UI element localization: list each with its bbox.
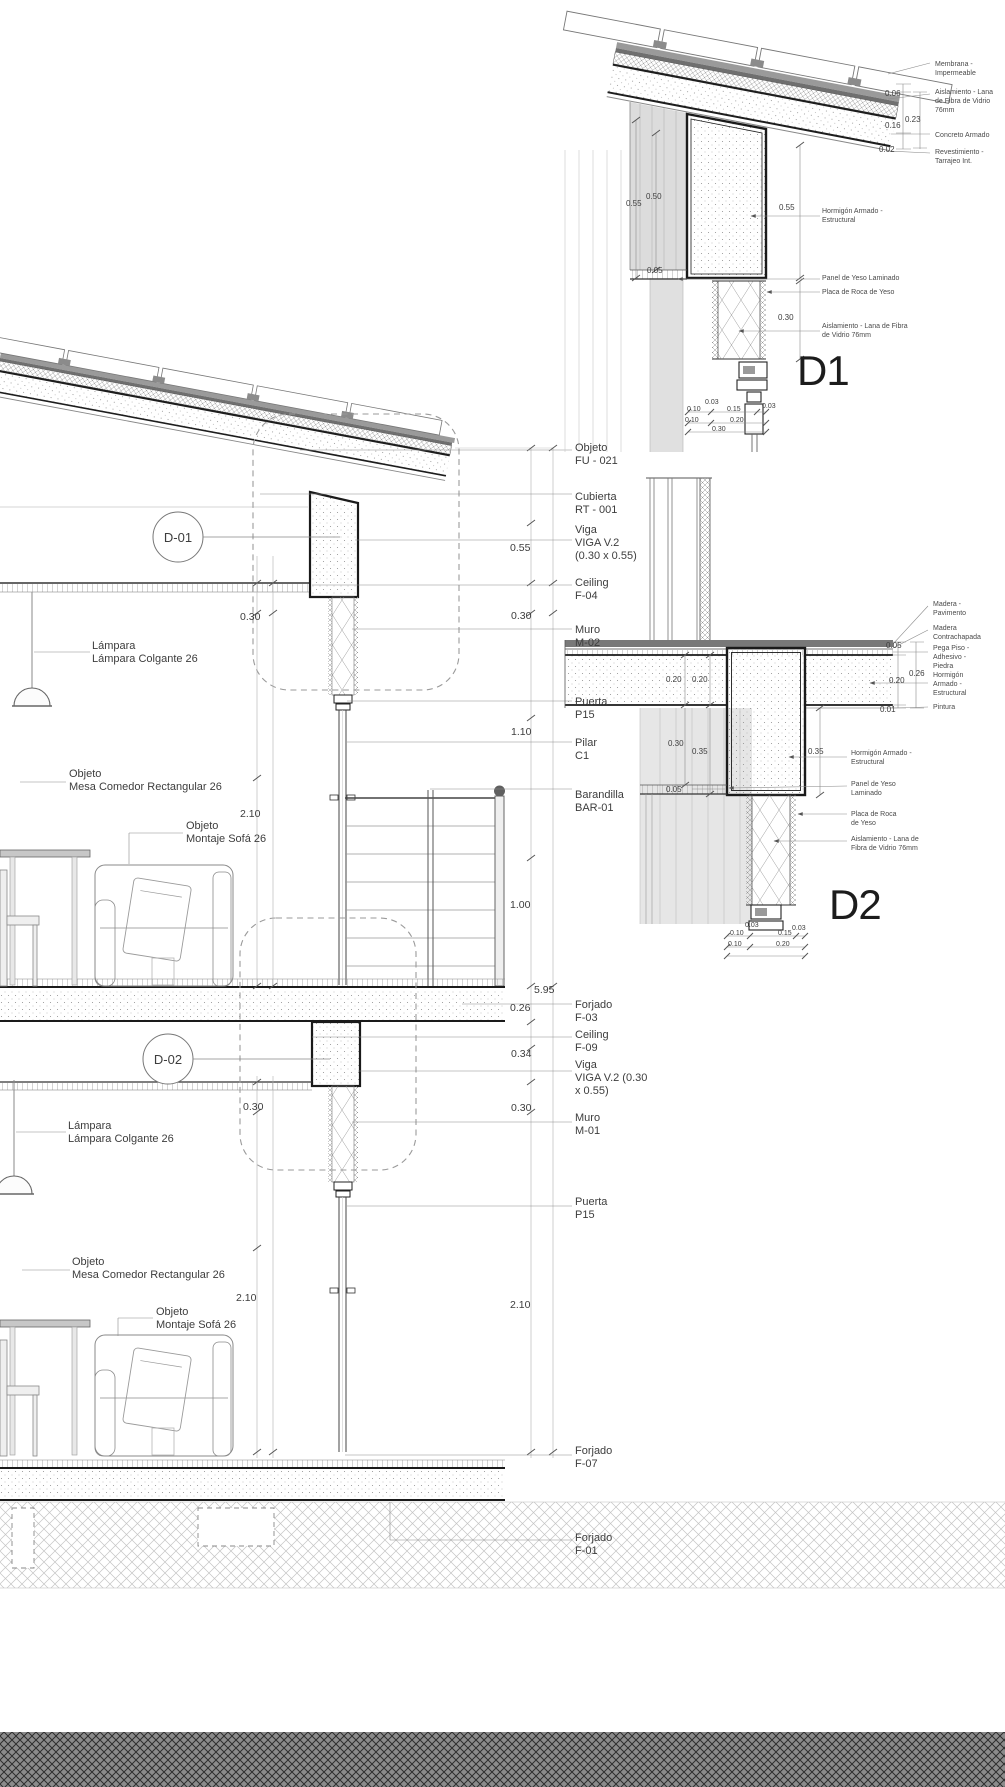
d1-dim: 0.23	[905, 115, 921, 124]
d2-label-hormigon-right: Hormigón Armado - Estructural	[933, 671, 966, 698]
pendant-lamp	[12, 592, 52, 706]
section-dim: 2.10	[510, 1300, 530, 1311]
d2-dim: 0.10	[728, 941, 742, 949]
deep-ground-band	[0, 1732, 1005, 1787]
annotation-lampara-inf: Lámpara Lámpara Colgante 26	[68, 1120, 174, 1146]
d2-dim: 0.30	[668, 739, 684, 748]
d2-dim: 0.20	[776, 941, 790, 949]
detail-d1	[553, 11, 952, 452]
d1-label-membrana: Membrana - Impermeable	[935, 60, 976, 78]
section-dim: 2.10	[236, 1293, 256, 1304]
d1-label-revestimiento: Revestimiento - Tarrajeo Int.	[935, 148, 984, 166]
section-dim: 0.34	[511, 1049, 531, 1060]
d1-dim: 0.06	[885, 89, 901, 98]
ground-slab	[0, 1460, 505, 1500]
annotation-viga-inf: Viga VIGA V.2 (0.30 x 0.55)	[575, 1059, 647, 1098]
d2-title: D2	[829, 884, 881, 926]
d1-label-placa-yeso: Placa de Roca de Yeso	[822, 288, 894, 297]
d2-label-madera-contrachapada: Madera Contrachapada	[933, 624, 981, 642]
d1-dim: 0.02	[879, 145, 895, 154]
main-roof-assembly	[0, 333, 458, 481]
ground-hatch-band	[0, 1502, 1005, 1588]
annotation-sofa-sup: Objeto Montaje Sofá 26	[186, 820, 266, 846]
architectural-section-sheet: Membrana - Impermeable Aislamiento - Lan…	[0, 0, 1005, 1787]
annotation-puerta-p15-sup: Puerta P15	[575, 696, 607, 722]
section-dim: 0.30	[243, 1102, 263, 1113]
d2-label-panel-yeso: Panel de Yeso Laminado	[851, 780, 896, 798]
d2-dim: 0.10	[730, 930, 744, 938]
d1-dim: 0.03	[762, 403, 776, 411]
d1-title: D1	[797, 350, 849, 392]
annotation-cubierta-rt001: Cubierta RT - 001	[575, 491, 617, 517]
upper-floor-structure	[0, 492, 358, 985]
annotation-ceiling-f04: Ceiling F-04	[575, 577, 609, 603]
annotation-puerta-p15-inf: Puerta P15	[575, 1196, 607, 1222]
d2-dim: 0.26	[909, 669, 925, 678]
railing-barandilla	[345, 786, 505, 987]
d2-dim: 0.15	[778, 930, 792, 938]
annotation-muro-m01: Muro M-01	[575, 1112, 600, 1138]
section-dim: 0.30	[511, 1103, 531, 1114]
d2-dim: 0.03	[792, 925, 806, 933]
d2-dim: 0.05	[666, 785, 682, 794]
annotation-mesa-inf: Objeto Mesa Comedor Rectangular 26	[72, 1256, 225, 1282]
section-dim: 0.55	[510, 543, 530, 554]
d1-dim: 0.15	[727, 406, 741, 414]
d2-dim: 0.35	[808, 747, 824, 756]
section-dim: 1.00	[510, 900, 530, 911]
d1-dim: 0.55	[779, 203, 795, 212]
d1-dim: 0.20	[730, 417, 744, 425]
d1-dim: 0.03	[705, 399, 719, 407]
d1-label-hormigon: Hormigón Armado - Estructural	[822, 207, 883, 225]
d2-label-aislamiento: Aislamiento - Lana de Fibra de Vidrio 76…	[851, 835, 919, 853]
detail-bubble-d01[interactable]: D-01	[148, 530, 208, 545]
annotation-forjado-f07: Forjado F-07	[575, 1445, 612, 1471]
d1-dim: 0.05	[647, 266, 663, 275]
annotation-viga-sup: Viga VIGA V.2 (0.30 x 0.55)	[575, 524, 637, 563]
d2-dim: 0.05	[886, 641, 902, 650]
section-dim: 5.95	[534, 985, 554, 996]
d1-dim: 0.30	[712, 426, 726, 434]
section-dim: 1.10	[511, 727, 531, 738]
d1-label-aislamiento-roof: Aislamiento - Lana de Fibra de Vidrio 76…	[935, 88, 993, 115]
d2-label-pega-piso: Pega Piso - Adhesivo - Piedra	[933, 644, 969, 671]
annotation-objeto-fu021: Objeto FU - 021	[575, 442, 618, 468]
annotation-lampara-sup: Lámpara Lámpara Colgante 26	[92, 640, 198, 666]
section-dim: 2.10	[240, 809, 260, 820]
annotation-barandilla: Barandilla BAR-01	[575, 789, 624, 815]
annotation-pilar-c1: Pilar C1	[575, 737, 597, 763]
d2-dim: 0.20	[692, 675, 708, 684]
d1-dim: 0.50	[646, 192, 662, 201]
d1-label-panel-yeso: Panel de Yeso Laminado	[822, 274, 899, 283]
d2-dim: 0.01	[880, 705, 896, 714]
d2-label-madera-pavimento: Madera - Pavimento	[933, 600, 966, 618]
annotation-forjado-f01: Forjado F-01	[575, 1532, 612, 1558]
d2-label-hormigon-mid: Hormigón Armado - Estructural	[851, 749, 912, 767]
annotation-sofa-inf: Objeto Montaje Sofá 26	[156, 1306, 236, 1332]
d2-label-pintura: Pintura	[933, 703, 955, 712]
d1-label-concreto: Concreto Armado	[935, 131, 989, 140]
annotation-ceiling-f09: Ceiling F-09	[575, 1029, 609, 1055]
section-dim: 0.30	[511, 611, 531, 622]
d1-dim: 0.30	[778, 313, 794, 322]
d1-dim: 0.16	[885, 121, 901, 130]
annotation-mesa-sup: Objeto Mesa Comedor Rectangular 26	[69, 768, 222, 794]
section-dim: 0.26	[510, 1003, 530, 1014]
d2-dim: 0.03	[745, 922, 759, 930]
d1-dim: 0.10	[687, 406, 701, 414]
d2-dim: 0.20	[666, 675, 682, 684]
d1-label-aislamiento-muro: Aislamiento - Lana de Fibra de Vidrio 76…	[822, 322, 908, 340]
d1-dim: 0.55	[626, 199, 642, 208]
d2-label-placa-yeso: Placa de Roca de Yeso	[851, 810, 897, 828]
annotation-forjado-f03: Forjado F-03	[575, 999, 612, 1025]
d2-dim: 0.20	[889, 676, 905, 685]
detail-bubble-d02[interactable]: D-02	[138, 1052, 198, 1067]
furniture-set	[0, 850, 233, 986]
d1-dim: 0.10	[685, 417, 699, 425]
section-dim: 0.30	[240, 612, 260, 623]
d2-dim: 0.35	[692, 747, 708, 756]
annotation-muro-m02: Muro M-02	[575, 624, 600, 650]
